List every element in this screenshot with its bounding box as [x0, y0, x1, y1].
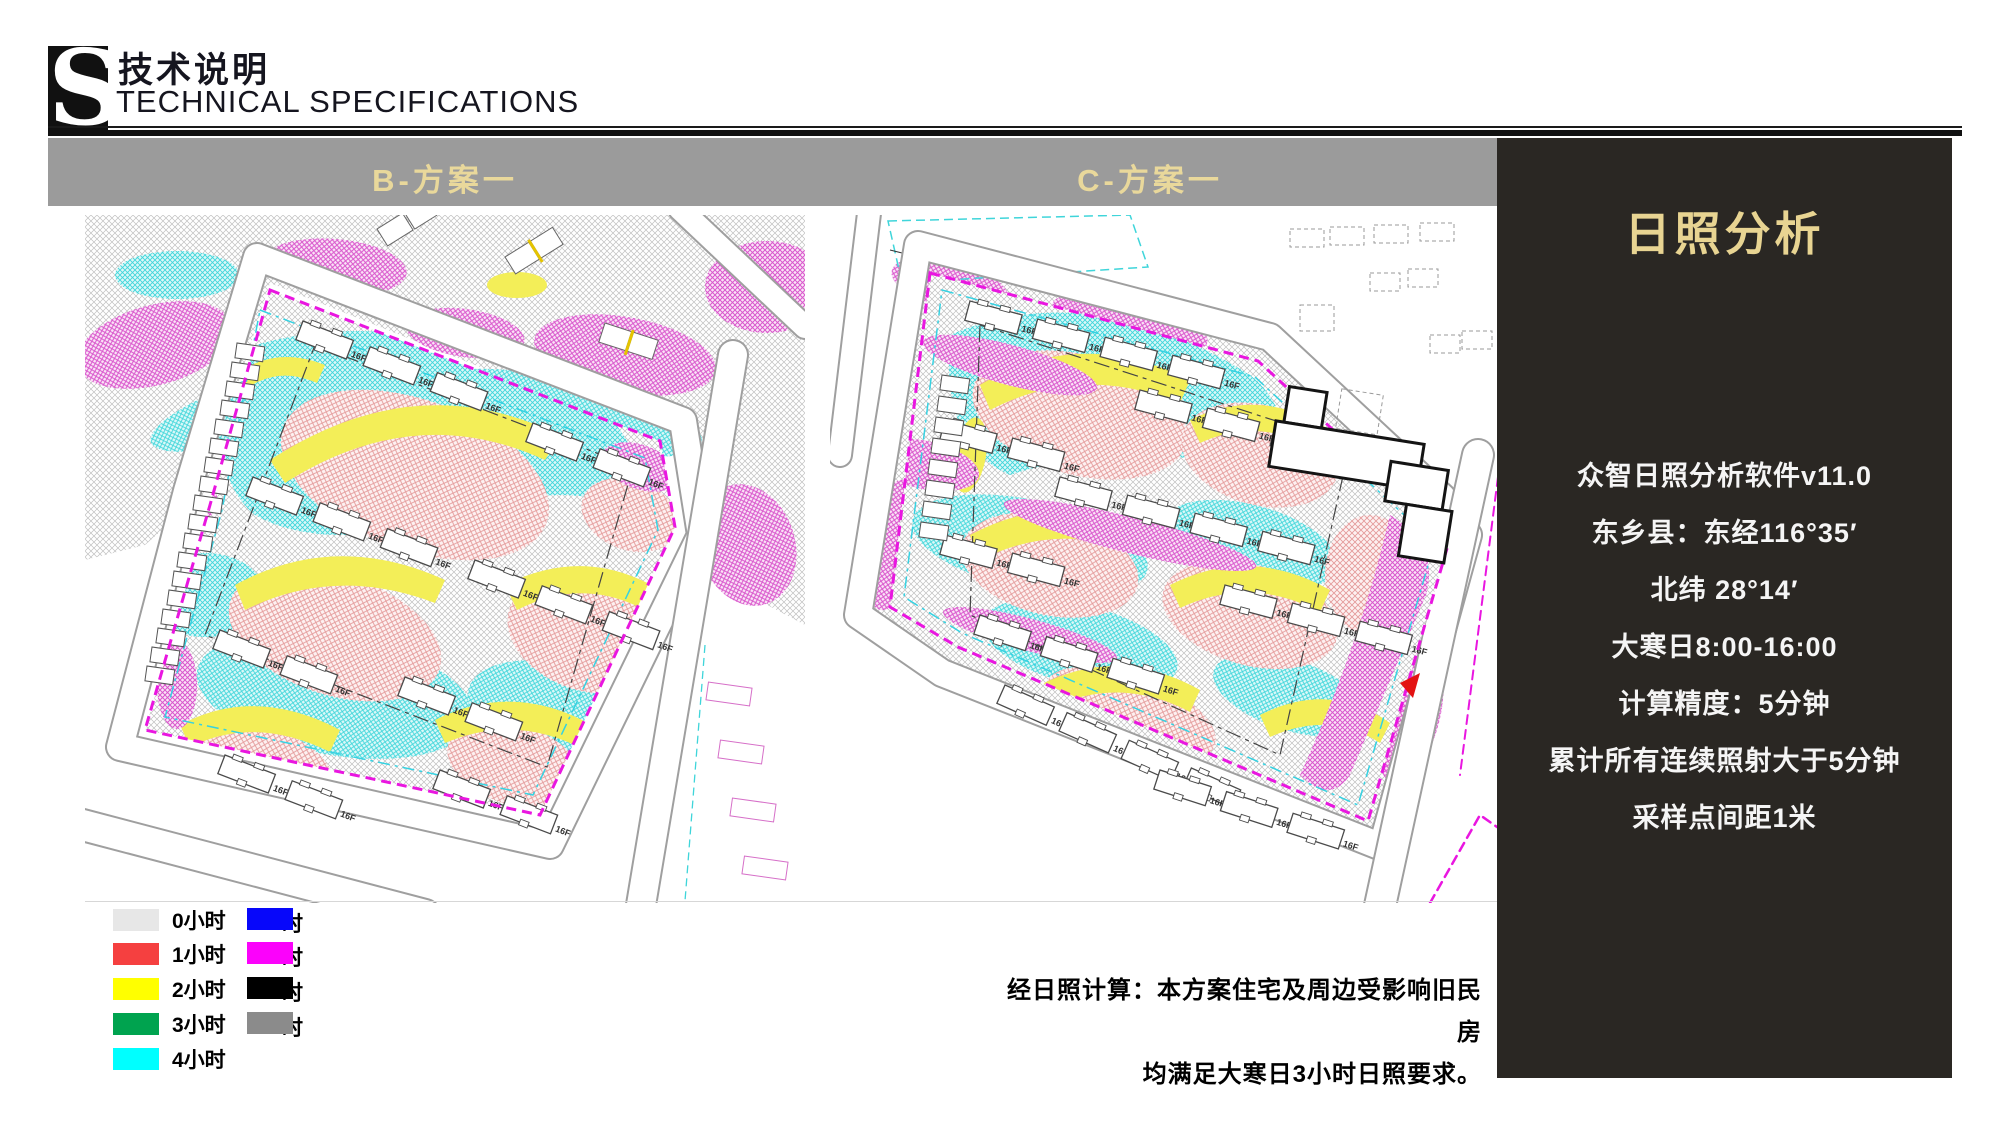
company-logo: S: [46, 36, 112, 132]
panel-line-software: 众智日照分析软件v11.0: [1497, 448, 1952, 505]
panel-line-latitude: 北纬 28°14′: [1497, 562, 1952, 619]
legend-swatch-8h: [247, 1012, 293, 1034]
legend-label-1h: 1小时: [172, 939, 226, 969]
legend-row: 2小时: [113, 977, 226, 1000]
legend-swatch-5h: [247, 908, 293, 930]
sunlight-map-scheme-b: [85, 215, 805, 903]
panel-line-precision: 计算精度：5分钟: [1497, 676, 1952, 733]
legend-row: 4小时: [113, 1047, 226, 1070]
legend-swatch-6h: [247, 942, 293, 964]
legend-swatch-7h: [247, 977, 293, 999]
scheme-b-label: B-方案一: [372, 155, 518, 200]
legend-row-clipped: 时: [247, 908, 319, 931]
analysis-side-panel: 日照分析 众智日照分析软件v11.0 东乡县：东经116°35′ 北纬 28°1…: [1497, 138, 1952, 1078]
panel-line-timewindow: 大寒日8:00-16:00: [1497, 619, 1952, 676]
legend-swatch-1h: [113, 943, 159, 965]
legend-swatch-2h: [113, 978, 159, 1000]
conclusion-note-line2: 均满足大寒日3小时日照要求。: [1000, 1054, 1482, 1096]
sunlight-map-scheme-c: [830, 215, 1497, 903]
slide-page: S 技术说明 TECHNICAL SPECIFICATIONS B-方案一 C-…: [0, 0, 1995, 1122]
legend-swatch-4h: [113, 1048, 159, 1070]
legend-row-clipped: 时: [247, 942, 319, 965]
legend-label-4h: 4小时: [172, 1044, 226, 1074]
legend-row-clipped: 时: [247, 1012, 319, 1035]
scheme-header-bar: B-方案一 C-方案一: [48, 138, 1497, 206]
legend-label-2h: 2小时: [172, 974, 226, 1004]
panel-line-sampling: 采样点间距1米: [1497, 790, 1952, 847]
header-rule-thin: [48, 126, 1962, 128]
page-title-en: TECHNICAL SPECIFICATIONS: [116, 84, 579, 120]
legend-row: 1小时: [113, 942, 226, 965]
conclusion-note-line1: 经日照计算：本方案住宅及周边受影响旧民房: [1000, 970, 1482, 1054]
conclusion-note: 经日照计算：本方案住宅及周边受影响旧民房 均满足大寒日3小时日照要求。: [1000, 970, 1482, 1096]
legend-label-0h: 0小时: [172, 905, 226, 935]
svg-text:S: S: [48, 36, 112, 132]
legend-row-clipped: 时: [247, 977, 319, 1000]
legend-swatch-3h: [113, 1013, 159, 1035]
panel-parameter-lines: 众智日照分析软件v11.0 东乡县：东经116°35′ 北纬 28°14′ 大寒…: [1497, 448, 1952, 847]
header-rule-thick: [48, 130, 1962, 136]
legend-swatch-0h: [113, 909, 159, 931]
scheme-c-label: C-方案一: [1077, 155, 1223, 200]
legend-row: 0小时: [113, 908, 226, 931]
panel-line-longitude: 东乡县：东经116°35′: [1497, 505, 1952, 562]
legend-row: 3小时: [113, 1012, 226, 1035]
map-baseline-rule: [85, 901, 1497, 902]
panel-title: 日照分析: [1497, 198, 1952, 264]
panel-line-accumulation: 累计所有连续照射大于5分钟: [1497, 733, 1952, 790]
legend-label-3h: 3小时: [172, 1009, 226, 1039]
